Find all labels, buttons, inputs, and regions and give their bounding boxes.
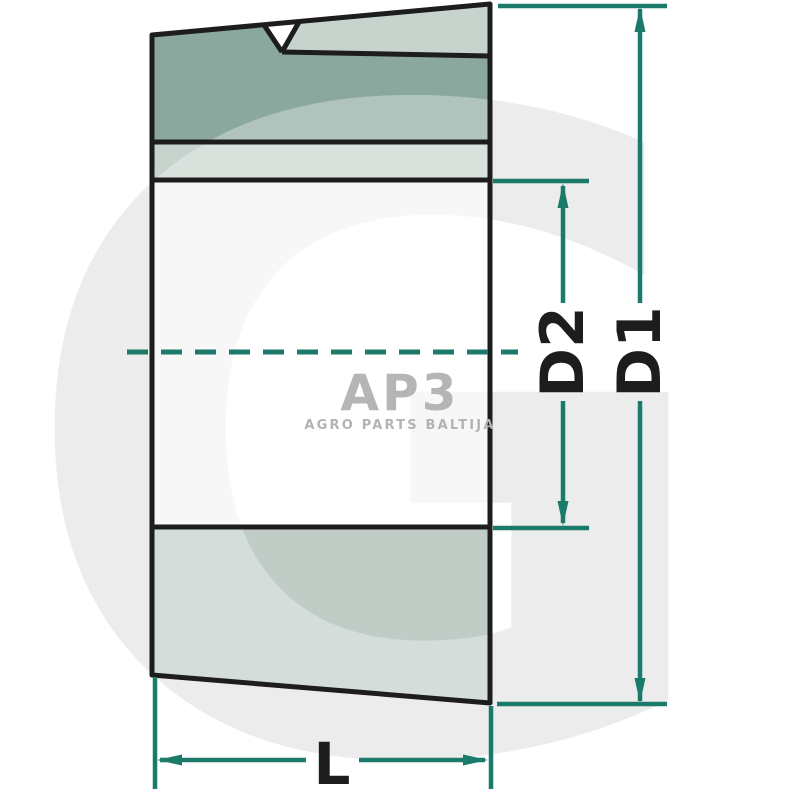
d1-label: D1 <box>605 306 675 398</box>
technical-drawing-svg: G <box>0 0 800 800</box>
d2-label: D2 <box>528 306 598 398</box>
apb-logo-subtext: AGRO PARTS BALTIJA <box>304 418 495 433</box>
product-technical-drawing: G <box>0 0 800 800</box>
apb-logo-text: AP3 <box>340 364 459 422</box>
length-label: L <box>314 730 351 798</box>
